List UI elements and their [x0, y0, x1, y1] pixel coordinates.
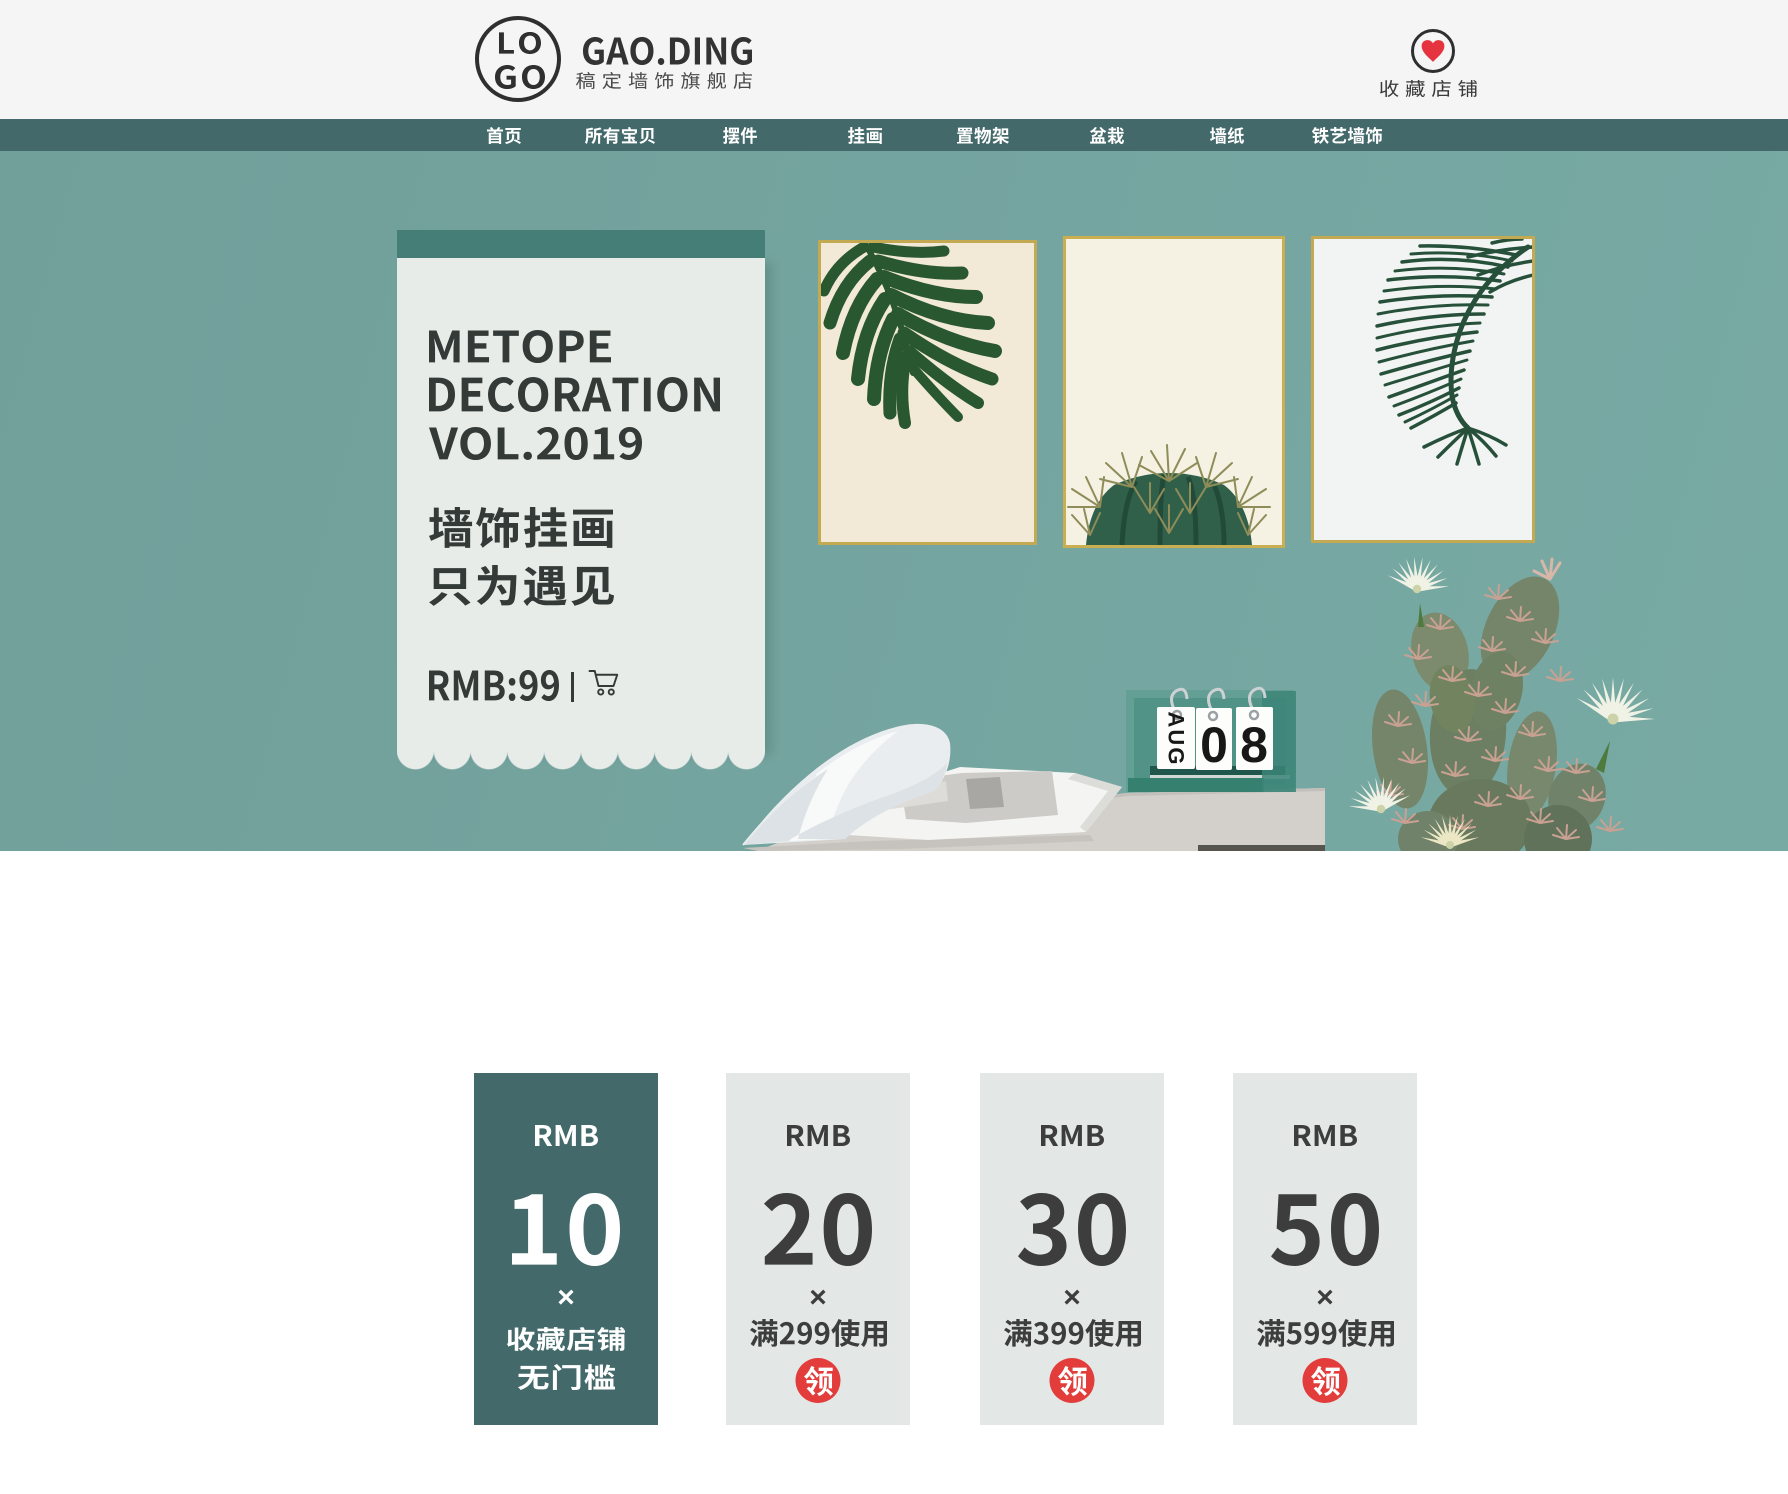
svg-text:0: 0 — [1200, 717, 1228, 773]
svg-text:AUG: AUG — [1164, 712, 1189, 767]
svg-text:8: 8 — [1240, 717, 1268, 773]
